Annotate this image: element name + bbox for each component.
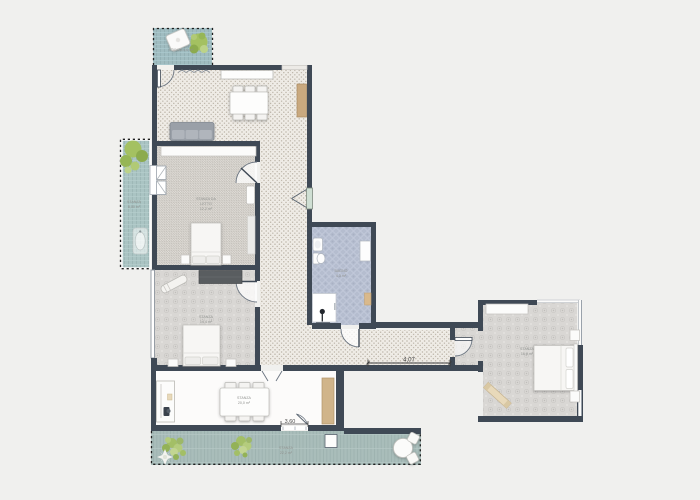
svg-text:STANZA: STANZA bbox=[237, 396, 252, 400]
svg-text:3,60: 3,60 bbox=[285, 419, 296, 425]
svg-text:STANZA DA: STANZA DA bbox=[196, 197, 216, 201]
svg-text:20,0 m²: 20,0 m² bbox=[238, 401, 251, 405]
svg-text:STANZA: STANZA bbox=[279, 446, 294, 450]
svg-text:16,8 m²: 16,8 m² bbox=[521, 352, 534, 356]
svg-text:12,2 m²: 12,2 m² bbox=[200, 207, 213, 211]
svg-text:14,4 m²: 14,4 m² bbox=[200, 320, 213, 324]
svg-text:BAGNO: BAGNO bbox=[335, 269, 348, 273]
svg-text:STANZA: STANZA bbox=[127, 200, 142, 204]
svg-text:8,00 m²: 8,00 m² bbox=[128, 205, 141, 209]
svg-text:4,07: 4,07 bbox=[403, 358, 415, 364]
svg-text:STANZA: STANZA bbox=[199, 315, 214, 319]
svg-text:4,3 m²: 4,3 m² bbox=[336, 274, 347, 278]
svg-text:22,2 m²: 22,2 m² bbox=[280, 451, 293, 455]
svg-text:STANZA: STANZA bbox=[520, 347, 535, 351]
svg-text:LETTO: LETTO bbox=[200, 202, 212, 206]
svg-text:STANZA 4,6 m²: STANZA 4,6 m² bbox=[169, 48, 195, 52]
